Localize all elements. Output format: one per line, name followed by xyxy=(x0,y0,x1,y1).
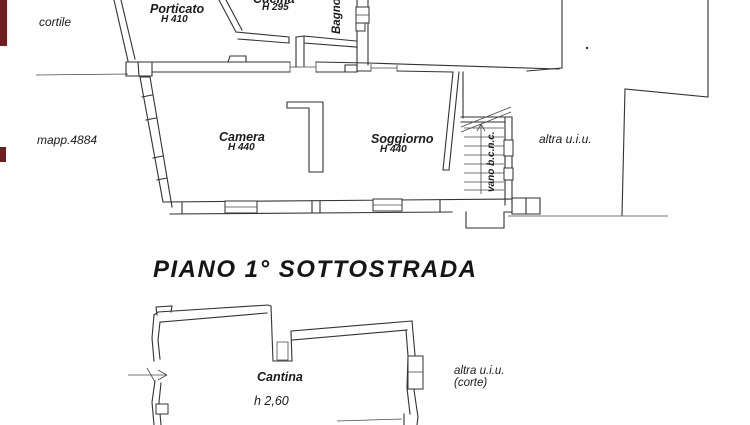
label-altra-uiu-upper: altra u.i.u. xyxy=(539,133,592,145)
entrance-arrow xyxy=(128,368,167,382)
scan-artifact-marks xyxy=(0,0,7,162)
label-altra-uiu-lower: altra u.i.u. xyxy=(454,366,505,378)
floor-plan-page: cortile mapp.4884 altra u.i.u. Porticato… xyxy=(0,0,750,425)
upper-plan-walls xyxy=(36,0,708,228)
lower-plan-windows xyxy=(156,356,423,414)
plan-title: PIANO 1° SOTTOSTRADA xyxy=(153,258,478,282)
room-height-soggiorno: H 440 xyxy=(380,145,407,155)
label-cortile: cortile xyxy=(39,16,71,28)
room-height-cantina: h 2,60 xyxy=(254,395,289,408)
room-height-camera: H 440 xyxy=(228,143,255,153)
label-corte: (corte) xyxy=(454,378,487,390)
room-label-cantina: Cantina xyxy=(257,371,303,384)
room-height-cucina: H 295 xyxy=(262,3,289,13)
room-label-vano-bcnc: vano b.c.n.c. xyxy=(487,131,497,192)
label-mapp: mapp.4884 xyxy=(37,134,97,146)
floor-plan-drawing xyxy=(0,0,750,425)
room-height-porticato: H 410 xyxy=(161,15,188,25)
room-label-bagno: Bagno xyxy=(332,0,344,34)
